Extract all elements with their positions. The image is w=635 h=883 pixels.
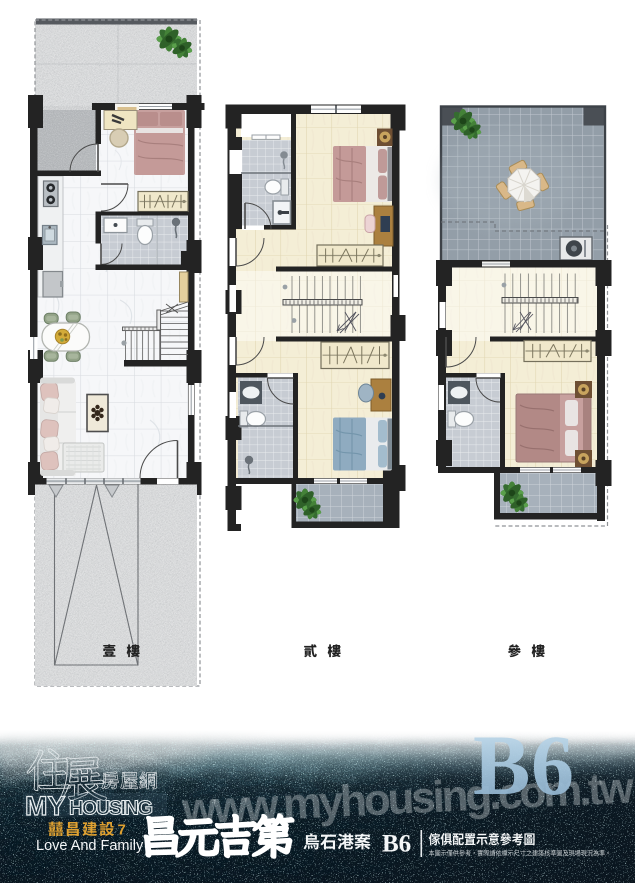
svg-text:B6: B6: [382, 831, 411, 858]
svg-text:MY: MY: [25, 791, 66, 821]
svg-text:7: 7: [118, 822, 126, 839]
svg-text:Love And Family: Love And Family: [36, 838, 144, 854]
svg-text:B6: B6: [473, 730, 574, 813]
svg-text:HOUSING: HOUSING: [69, 798, 153, 820]
